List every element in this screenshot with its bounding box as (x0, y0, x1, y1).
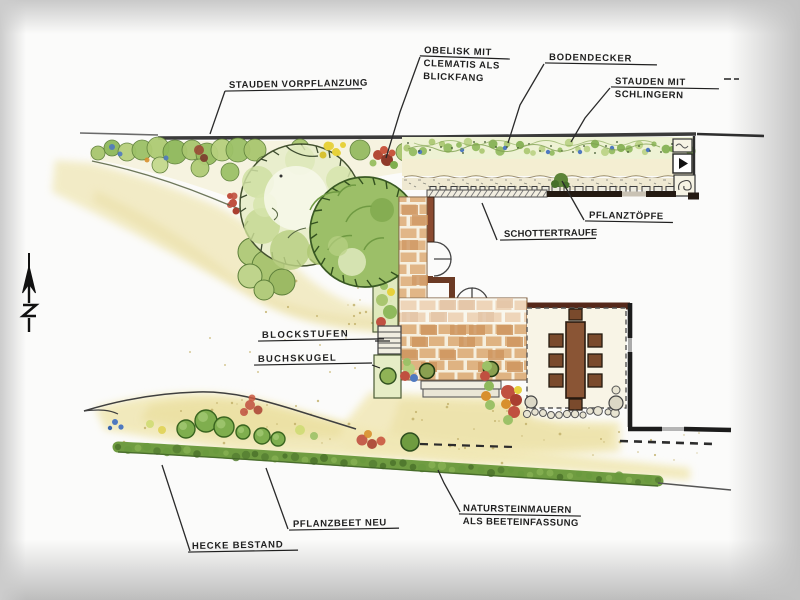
svg-text:PFLANZTÖPFE: PFLANZTÖPFE (589, 210, 664, 222)
svg-text:BLICKFANG: BLICKFANG (423, 71, 484, 84)
svg-text:ALS BEETEINFASSUNG: ALS BEETEINFASSUNG (463, 516, 579, 529)
svg-text:BUCHSKUGEL: BUCHSKUGEL (258, 353, 337, 365)
svg-text:BODENDECKER: BODENDECKER (549, 52, 632, 64)
svg-text:STAUDEN MIT: STAUDEN MIT (615, 76, 686, 88)
svg-text:SCHLINGERN: SCHLINGERN (615, 89, 684, 101)
